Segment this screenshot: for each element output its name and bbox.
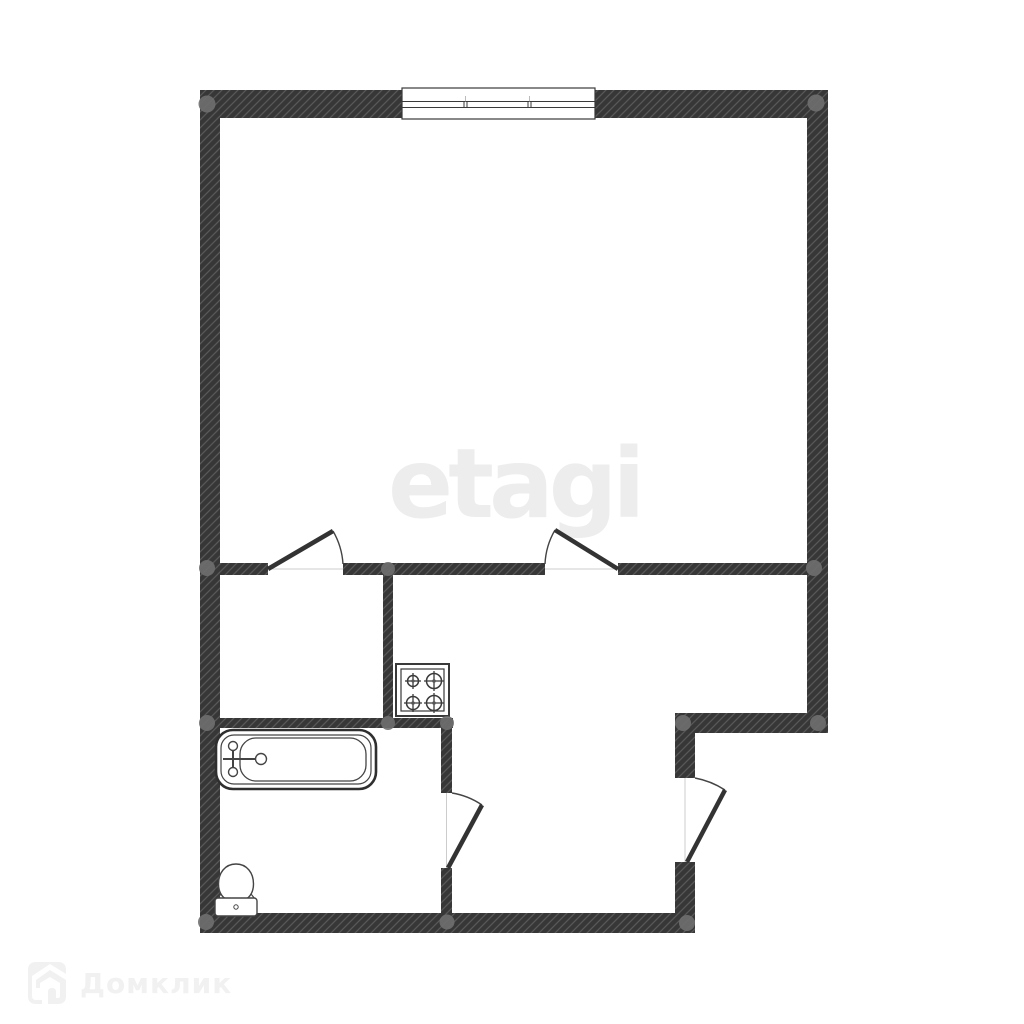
wall-middle-segment-1 bbox=[220, 563, 268, 575]
toilet-icon bbox=[215, 864, 257, 916]
wall-top-left-segment bbox=[200, 90, 402, 118]
junction-dot bbox=[810, 715, 826, 731]
kitchen-door bbox=[545, 530, 618, 569]
junction-dot bbox=[679, 915, 695, 931]
junction-dot bbox=[806, 560, 822, 576]
entry-door-swing-arc bbox=[695, 778, 725, 790]
stove-icon bbox=[396, 664, 449, 716]
floor-plan-canvas: etagi Домклик bbox=[0, 0, 1024, 1024]
bathtub-icon bbox=[216, 730, 376, 789]
closet-door-leaf bbox=[268, 531, 333, 569]
closet-door bbox=[268, 531, 343, 569]
bathroom-door-swing-arc bbox=[452, 793, 482, 805]
junction-dot bbox=[808, 95, 825, 112]
wall-right bbox=[807, 90, 828, 733]
junction-dot bbox=[381, 562, 395, 576]
wall-junction-dots bbox=[198, 95, 826, 932]
entry-door-leaf bbox=[687, 790, 725, 862]
wall-left bbox=[200, 90, 220, 933]
wall-bathroom-right-lower bbox=[441, 868, 452, 913]
exterior-walls bbox=[200, 90, 828, 933]
junction-dot bbox=[381, 716, 395, 730]
floor-plan-drawing bbox=[0, 0, 1024, 1024]
wall-bathroom-top bbox=[220, 718, 453, 728]
wall-step-bottom-right bbox=[675, 713, 828, 733]
junction-dot bbox=[199, 96, 216, 113]
closet-door-swing-arc bbox=[333, 531, 343, 564]
kitchen-door-swing-arc bbox=[545, 530, 555, 564]
bathroom-door-leaf bbox=[448, 805, 482, 868]
wall-top-right-segment bbox=[595, 90, 828, 118]
bathroom-door bbox=[447, 793, 483, 868]
wall-middle-segment-2 bbox=[343, 563, 545, 575]
junction-dot bbox=[199, 715, 215, 731]
junction-dot bbox=[675, 715, 691, 731]
wall-middle-segment-3 bbox=[618, 563, 807, 575]
wall-entry-upper bbox=[675, 733, 695, 778]
wall-closet-kitchen-divider bbox=[383, 575, 393, 718]
window bbox=[402, 88, 595, 119]
junction-dot bbox=[199, 560, 215, 576]
junction-dot bbox=[440, 915, 455, 930]
entry-door bbox=[685, 778, 725, 862]
wall-bathroom-right-upper bbox=[441, 728, 452, 793]
kitchen-door-leaf bbox=[555, 530, 618, 569]
junction-dot bbox=[440, 716, 454, 730]
junction-dot bbox=[198, 914, 214, 930]
